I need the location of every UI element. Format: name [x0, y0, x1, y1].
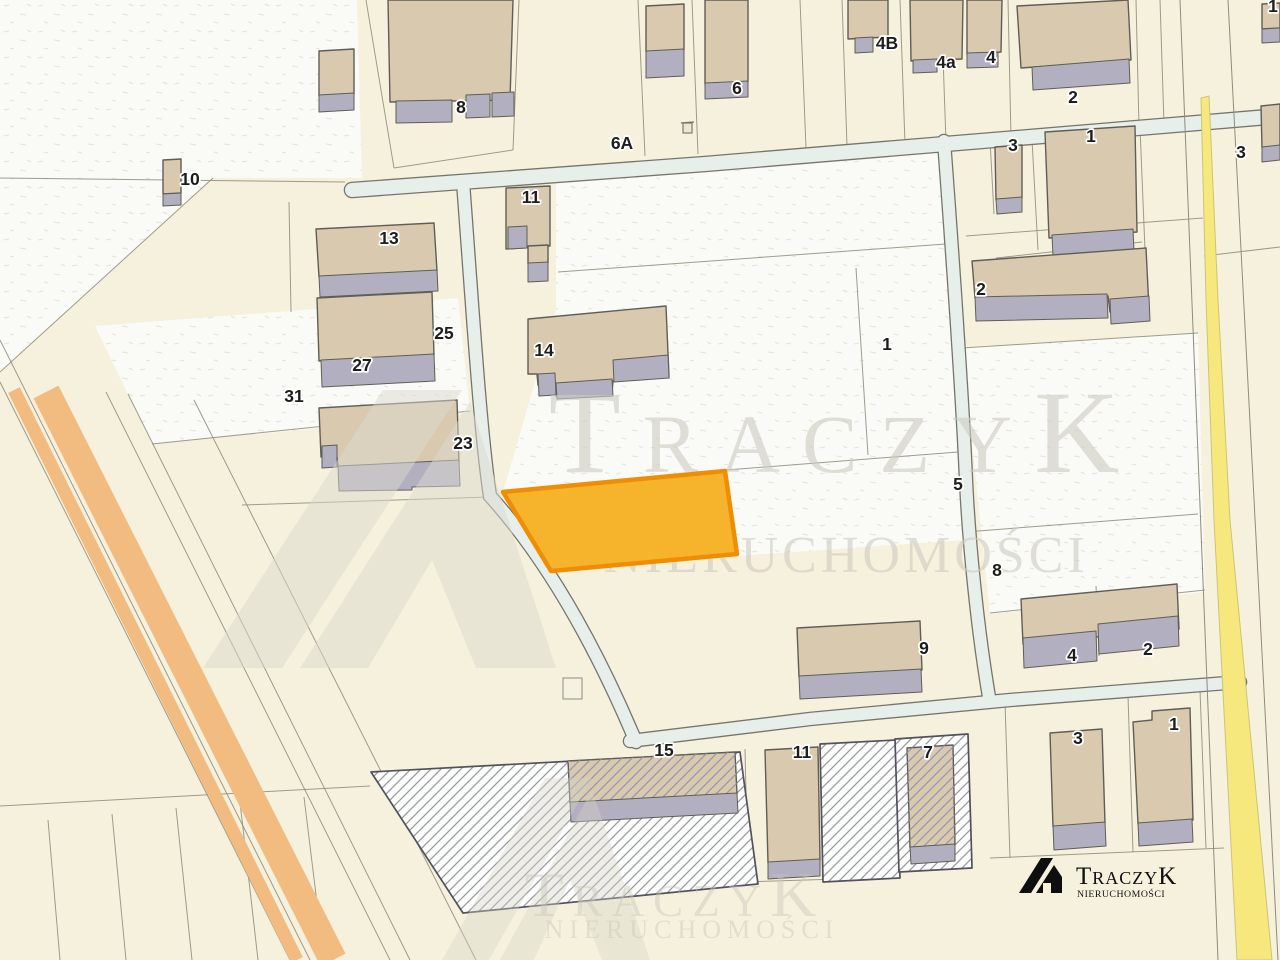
plot-number-label: 2: [1143, 639, 1153, 659]
plot-number-label: 3: [1073, 728, 1083, 748]
plot-number-label: 27: [352, 355, 371, 375]
building-shadow-edge: [1262, 28, 1280, 43]
plot-number-label: 5: [953, 474, 963, 494]
hatched-parcel: [820, 740, 900, 882]
building-shadow-edge: [508, 226, 527, 249]
building: [967, 0, 1002, 54]
plot-number-label: 4a: [936, 52, 956, 72]
building-shadow-edge: [321, 354, 435, 387]
agency-logo-sub: NIERUCHOMOŚCI: [1077, 888, 1165, 900]
building-shadow-edge: [975, 294, 1108, 321]
street-name-label: 6A: [611, 133, 634, 153]
building: [319, 49, 354, 96]
building-shadow-edge: [646, 49, 684, 78]
plot-number-label: 23: [453, 433, 473, 453]
trash-bin-icon: [683, 123, 692, 133]
building: [705, 0, 748, 84]
plot-number-label: 25: [434, 323, 454, 343]
building: [646, 4, 684, 52]
plot-number-label: 4B: [876, 33, 898, 53]
plot-number-label: 14: [534, 340, 554, 360]
building-shadow-edge: [1138, 819, 1193, 846]
plot-number-label: 4: [1067, 645, 1077, 665]
plot-number-label: 31: [284, 386, 304, 406]
plot-number-label: 3: [1008, 135, 1018, 155]
building: [316, 223, 437, 277]
building: [1261, 104, 1280, 148]
map-screenshot: TraczyK NIERUCHOMOŚCI TraczyK NIERUCHOMO…: [0, 0, 1280, 960]
plot-number-label: 8: [992, 560, 1002, 580]
plot-number-label: 11: [522, 187, 541, 207]
building: [1017, 0, 1131, 68]
building: [528, 245, 548, 264]
building: [797, 621, 922, 677]
plot-number-label: 7: [923, 742, 933, 762]
building-shadow-edge: [1110, 296, 1150, 324]
building-shadow-edge: [913, 59, 937, 73]
plot-number-label: 13: [379, 228, 399, 248]
building-shadow-edge: [466, 94, 490, 118]
plot-number-label: 2: [1068, 87, 1078, 107]
plot-number-label: 4: [986, 47, 996, 67]
plot-number-label: 1: [1086, 126, 1096, 146]
building-shadow-edge: [1023, 631, 1097, 668]
building-shadow-edge: [1053, 822, 1106, 850]
plot-number-label: 1: [1169, 714, 1179, 734]
building-shadow-edge: [1262, 145, 1280, 162]
building: [1133, 708, 1193, 824]
small-structure: [563, 678, 582, 699]
plot-number-label: 11: [793, 742, 812, 762]
agency-logo-brand: TraczyK: [1076, 863, 1177, 890]
building: [317, 292, 434, 361]
building-shadow-edge: [163, 193, 181, 206]
building: [388, 0, 513, 102]
building-shadow-edge: [855, 37, 873, 53]
building-shadow-edge: [396, 100, 452, 123]
plot-number-label: 3: [1236, 142, 1246, 162]
plot-number-label: 9: [919, 638, 929, 658]
building: [163, 159, 181, 194]
plot-number-label: 15: [654, 740, 674, 760]
plot-number-label: 10: [180, 169, 200, 189]
building: [765, 747, 820, 863]
map-canvas: TraczyK NIERUCHOMOŚCI TraczyK NIERUCHOMO…: [0, 0, 1280, 960]
building-shadow-edge: [528, 262, 548, 282]
plot-number-label: 1: [882, 334, 892, 354]
building-shadow-edge: [319, 93, 354, 112]
open-field-parcel: [0, 0, 362, 178]
plot-number-label: 1: [1268, 0, 1278, 16]
watermark-sub-text: NIERUCHOMOŚCI: [545, 915, 840, 944]
agency-logo-icon: [1043, 883, 1051, 893]
plot-number-label: 8: [456, 97, 466, 117]
plot-number-label: 2: [976, 279, 986, 299]
building-shadow-edge: [492, 92, 514, 117]
building-shadow-edge: [996, 197, 1022, 214]
plot-number-label: 6: [732, 78, 742, 98]
building-shadow-edge: [910, 844, 955, 864]
